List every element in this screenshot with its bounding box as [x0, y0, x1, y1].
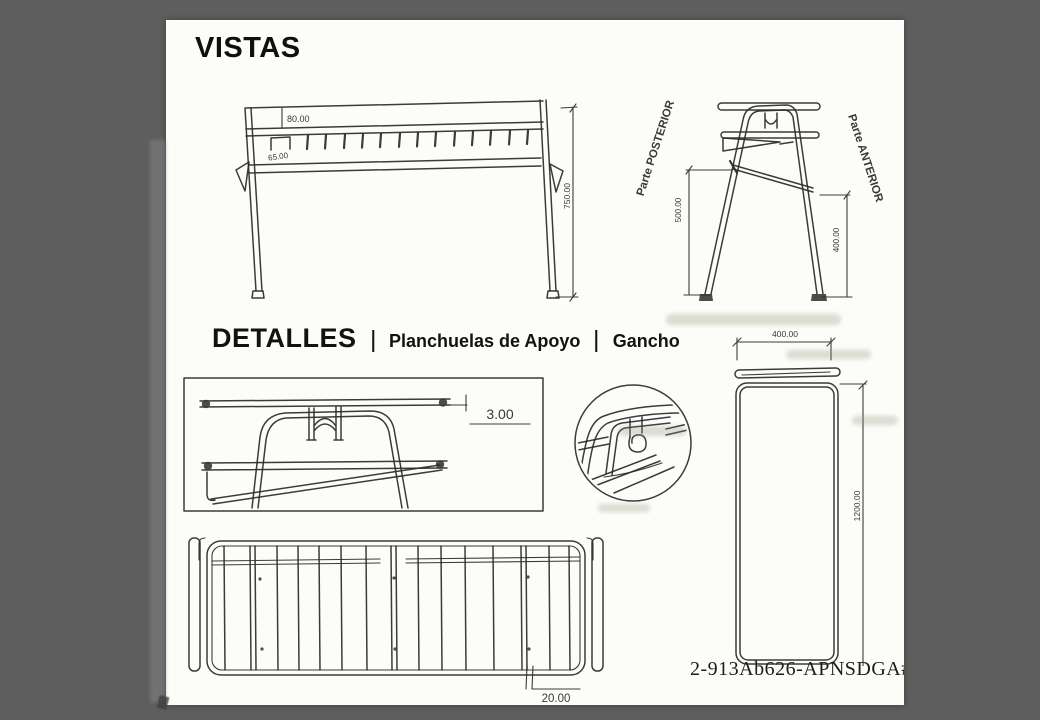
dim-frame-height: 1200.00 — [852, 490, 862, 521]
page-edge-shadow — [150, 140, 166, 702]
bleed-through-smudge — [852, 416, 898, 425]
page-corner-mark — [157, 695, 170, 710]
bleed-through-smudge — [666, 314, 841, 325]
hook-detail-drawing — [570, 373, 700, 515]
section-title-detalles: DETALLES — [212, 323, 357, 354]
scanned-drawing-page: VISTAS 80.00 65.00 750.00 — [166, 20, 904, 705]
label-parte-anterior: Parte ANTERIOR — [845, 113, 885, 204]
bleed-through-smudge — [618, 426, 686, 436]
label-parte-posterior: Parte POSTERIOR — [635, 98, 677, 197]
front-view-drawing: 80.00 65.00 750.00 — [232, 96, 582, 306]
frame-side-view-drawing: 400.00 1200.00 — [712, 326, 904, 666]
screenshot-root: { "vistas": { "title": "VISTAS" }, "fron… — [0, 0, 1040, 720]
drawing-code: 2-913Ab626-APNSDGA#N — [690, 658, 904, 681]
left-hook-flag — [236, 162, 249, 191]
side-view-drawing: 500.00 400.00 Parte POSTERIOR Parte ANTE… — [630, 80, 900, 315]
dim-frame-width: 400.00 — [772, 329, 798, 339]
separator-bar: | — [594, 326, 599, 353]
detail-label-planchuelas: Planchuelas de Apoyo — [389, 331, 580, 352]
bleed-through-smudge — [786, 350, 871, 359]
bleed-through-smudge — [598, 504, 650, 512]
grid-panel-drawing: 20.00 — [180, 526, 612, 704]
dim-rear-height: 500.00 — [674, 197, 683, 222]
dim-rail-width: 80.00 — [287, 114, 310, 124]
detail-label-gancho: Gancho — [613, 331, 680, 352]
dim-plate-thickness: 3.00 — [486, 406, 513, 422]
separator-bar: | — [370, 326, 375, 353]
dim-slat-gap: 20.00 — [542, 693, 571, 704]
dim-front-height: 400.00 — [832, 227, 841, 252]
dim-total-height: 750.00 — [562, 183, 572, 209]
dim-hook-depth: 65.00 — [268, 151, 290, 163]
section-title-detalles-row: DETALLES | Planchuelas de Apoyo | Gancho — [212, 323, 680, 354]
support-plate-detail-drawing: 3.00 — [182, 374, 547, 514]
section-title-vistas: VISTAS — [195, 32, 301, 65]
